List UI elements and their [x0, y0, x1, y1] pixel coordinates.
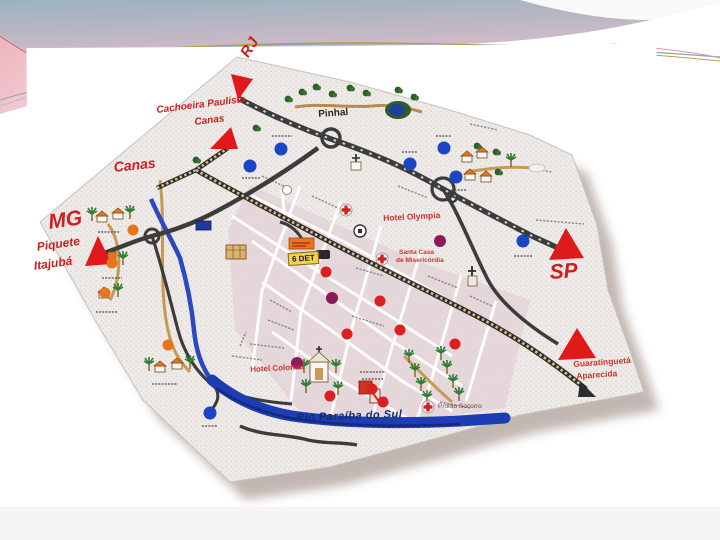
pond-icon	[389, 104, 405, 116]
bus-icon	[196, 221, 211, 230]
clearing-blob	[529, 164, 545, 172]
white-dot	[283, 186, 292, 195]
label-sp: SP	[549, 260, 578, 283]
city-map-image	[0, 0, 720, 540]
label-santa-casa-2: de Misericórdia	[396, 258, 444, 265]
label-canas: Canas	[113, 156, 156, 174]
label-pinhal: Pinhal	[318, 108, 349, 120]
slide: RJ Cachoeira Paulista Canas Canas MG Piq…	[0, 0, 720, 540]
label-santa-casa-1: Santa Casa	[399, 250, 434, 257]
label-6-det: 6 DET	[288, 251, 320, 266]
label-pronto-socorro: Pronto Socorro	[438, 404, 482, 411]
market-building-icon	[226, 245, 246, 259]
label-mg: MG	[47, 207, 83, 233]
slide-footer-strip	[0, 507, 720, 540]
